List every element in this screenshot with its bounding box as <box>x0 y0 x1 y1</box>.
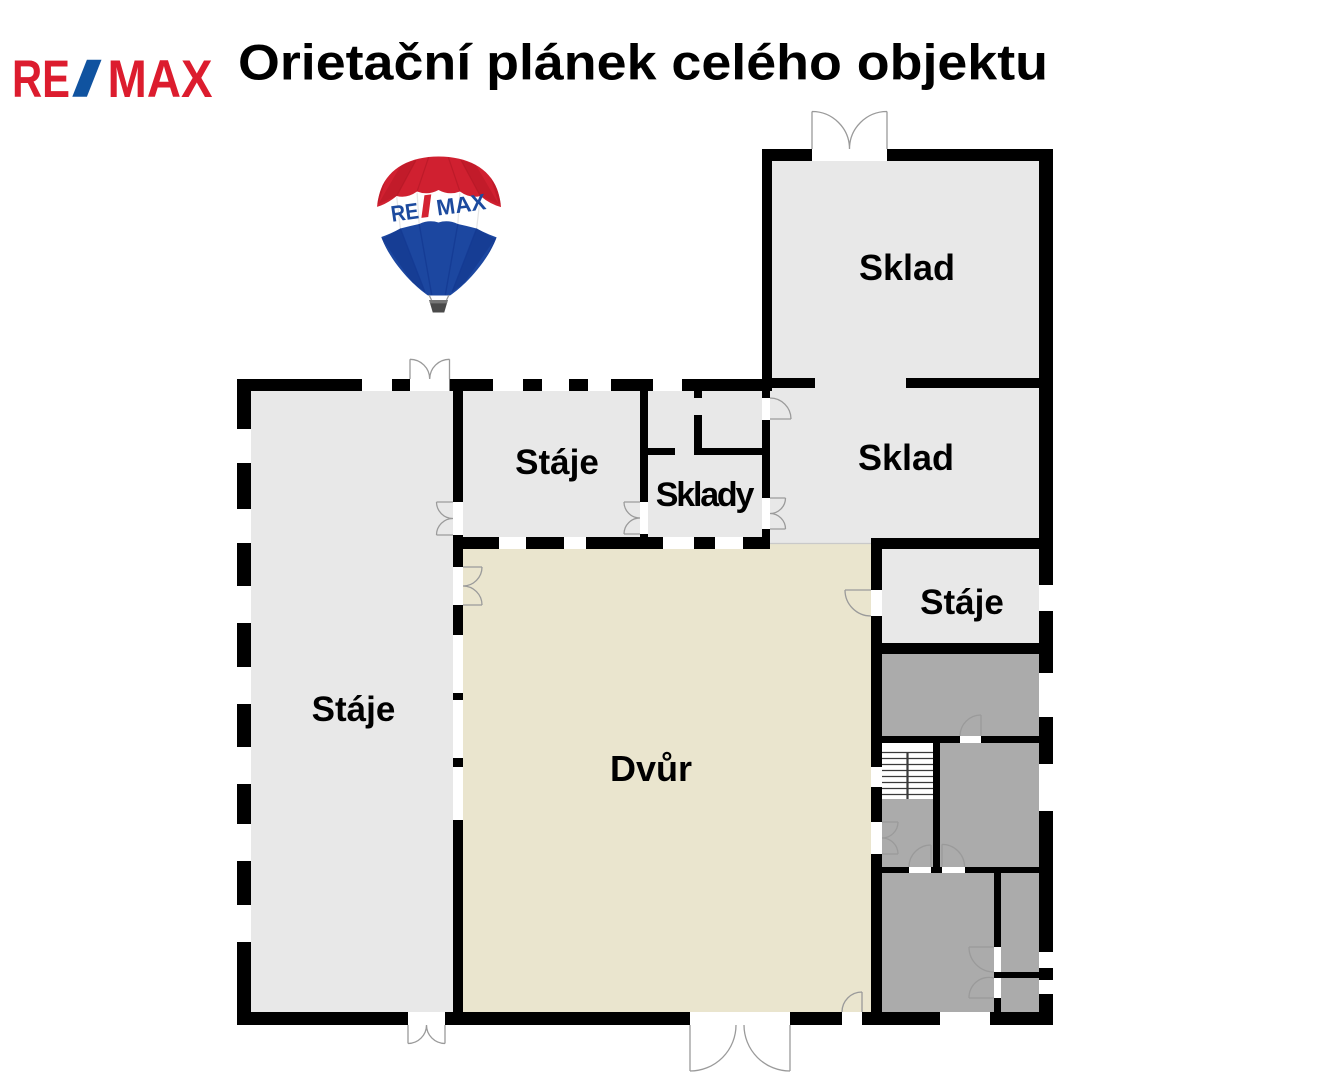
svg-text:Sklad: Sklad <box>858 437 954 478</box>
svg-text:Dvůr: Dvůr <box>610 748 692 789</box>
svg-text:Stáje: Stáje <box>920 583 1004 622</box>
svg-text:Sklady: Sklady <box>656 476 755 514</box>
svg-text:RE: RE <box>12 50 70 109</box>
svg-text:Stáje: Stáje <box>312 690 396 729</box>
svg-text:Orietační plánek celého objekt: Orietační plánek celého objektu <box>238 35 1048 91</box>
svg-text:MAX: MAX <box>108 50 213 109</box>
svg-text:Sklad: Sklad <box>859 247 955 288</box>
svg-text:RE: RE <box>389 198 420 227</box>
svg-text:Stáje: Stáje <box>515 443 599 482</box>
